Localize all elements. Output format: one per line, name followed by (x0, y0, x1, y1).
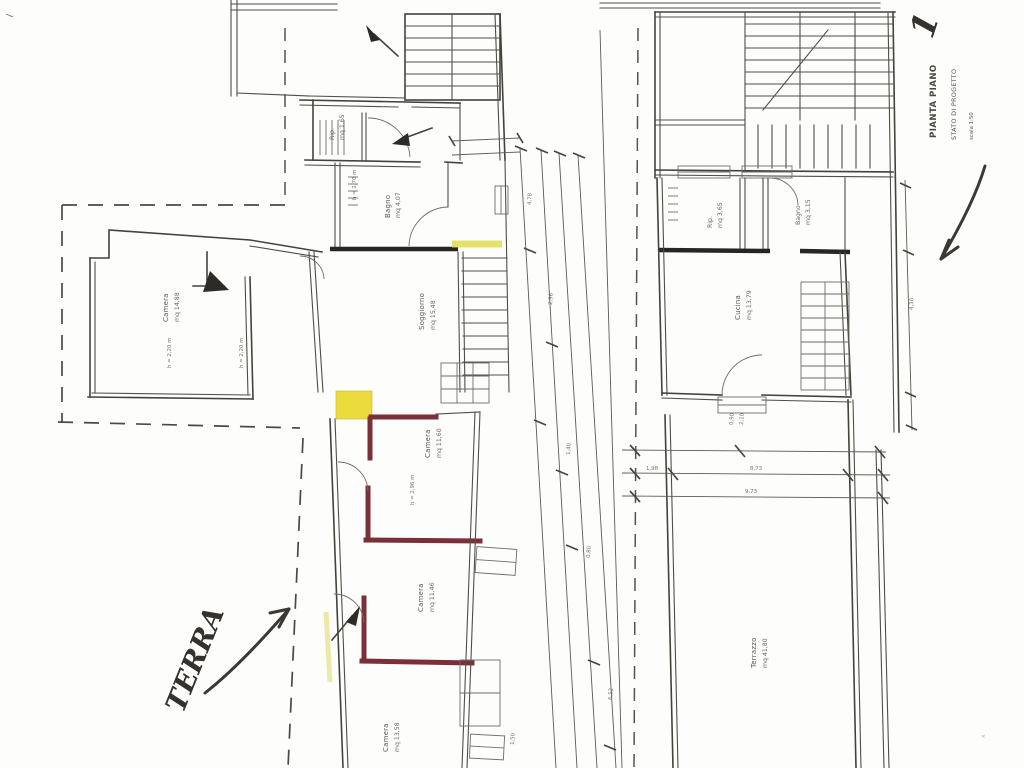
room-label: Soggiorno (418, 293, 426, 330)
right-plan-terrazzo (665, 400, 889, 768)
right-plan: 0,90 2,10 1,98 8,73 (600, 3, 917, 768)
room-area: mq 14,88 (174, 292, 181, 322)
room-area: mq 3,15 (805, 199, 812, 225)
dim-label: 4,30 (909, 297, 915, 310)
room-label: Camera (382, 723, 390, 752)
room-area: mq 4,07 (395, 192, 402, 218)
plan-scale: scala 1:50 (969, 112, 975, 140)
new-wall (362, 661, 472, 663)
direction-arrow-icon (193, 252, 229, 292)
room-label: Cucina (734, 295, 742, 320)
sheet-annotations: PIANTA PIANO STATO DI PROGETTO scala 1:5… (6, 8, 986, 768)
right-plan-cucina: 0,90 2,10 (657, 178, 851, 425)
scan-artifact: × (981, 734, 986, 740)
right-plan-staircase (655, 12, 893, 170)
height-note: h = 2,20 m (239, 338, 245, 368)
door-arc (770, 178, 798, 205)
door-arc (338, 462, 368, 491)
height-note: h = 2,96 m (410, 475, 416, 505)
left-plan-camera-grande (88, 230, 324, 399)
dim-label: 8,73 (750, 466, 762, 472)
room-area: mq 1,65 (339, 114, 346, 140)
room-label: Bagno (384, 195, 392, 218)
stair-direction-arrow-icon (366, 25, 398, 56)
door-arc (722, 355, 762, 395)
dim-label: 0,80 (586, 545, 593, 558)
room-label: Rip. (329, 128, 336, 140)
room-label: Rip. (707, 216, 714, 228)
left-plan-soggiorno (309, 252, 372, 419)
room-label: Camera (417, 583, 425, 612)
new-wall (366, 540, 480, 541)
highlight-new-opening (336, 391, 372, 419)
dim-label: 1,50 (510, 732, 517, 745)
room-label: Terrazzo (750, 637, 758, 669)
room-area: mq 15,48 (430, 300, 437, 330)
dim-label: 6,52 (608, 688, 615, 700)
height-note: h = 2,20 m (167, 338, 173, 368)
entry-arrow-icon (332, 606, 360, 640)
window-symbol (475, 547, 517, 576)
floor-plan-drawing: Camera mq 14,88 h = 2,20 m h = 2,20 m Ri… (0, 0, 1024, 768)
room-area: mq 11,60 (436, 428, 443, 458)
handwritten-floor-note: TERRA (159, 602, 231, 717)
height-note: h = 2,70 m (352, 170, 358, 200)
door-arc (409, 207, 448, 246)
room-area: mq 41,80 (762, 638, 769, 668)
handwritten-sheet-number: 1 (903, 8, 948, 43)
left-plan-stair-strip (441, 160, 509, 403)
room-area: mq 11,46 (429, 582, 436, 612)
left-plan-staircase-top (366, 14, 500, 100)
dim-label: 0,90 (729, 412, 736, 425)
window-symbol (678, 166, 730, 178)
door-arc (300, 256, 324, 279)
handwritten-arrow-right (941, 166, 985, 259)
window-symbol (469, 734, 504, 760)
scan-artifact (6, 14, 13, 17)
room-label: Camera (424, 429, 432, 458)
room-area: mq 13,58 (394, 722, 401, 752)
dim-label: 2,96 (548, 292, 555, 305)
right-plan-service-rooms (655, 166, 893, 252)
dimension-chains: 4,78 2,96 1,40 0,80 6,52 1,50 (449, 28, 638, 768)
right-plan-walls (600, 3, 899, 432)
scanned-floor-plan-page: Camera mq 14,88 h = 2,20 m h = 2,20 m Ri… (0, 0, 1024, 768)
highlight-pale-strip (326, 612, 330, 682)
room-area: mq 13,79 (746, 290, 753, 320)
dim-label: 1,40 (566, 442, 573, 455)
dim-label: 4,78 (527, 192, 534, 205)
room-area: mq 3,65 (717, 202, 724, 228)
dim-label: 1,98 (646, 466, 659, 472)
plan-title: PIANTA PIANO (929, 64, 939, 138)
room-label: Camera (162, 293, 170, 322)
plan-subtitle: STATO DI PROGETTO (950, 69, 958, 140)
right-plan-side-dimension: 4,30 (900, 180, 917, 430)
dim-label: 9,73 (745, 489, 757, 495)
left-plan: Camera mq 14,88 h = 2,20 m h = 2,20 m Ri… (58, 0, 517, 768)
dim-label: 2,10 (739, 412, 746, 425)
left-plan-bagno (305, 160, 508, 249)
room-label: Bagno (795, 205, 802, 225)
